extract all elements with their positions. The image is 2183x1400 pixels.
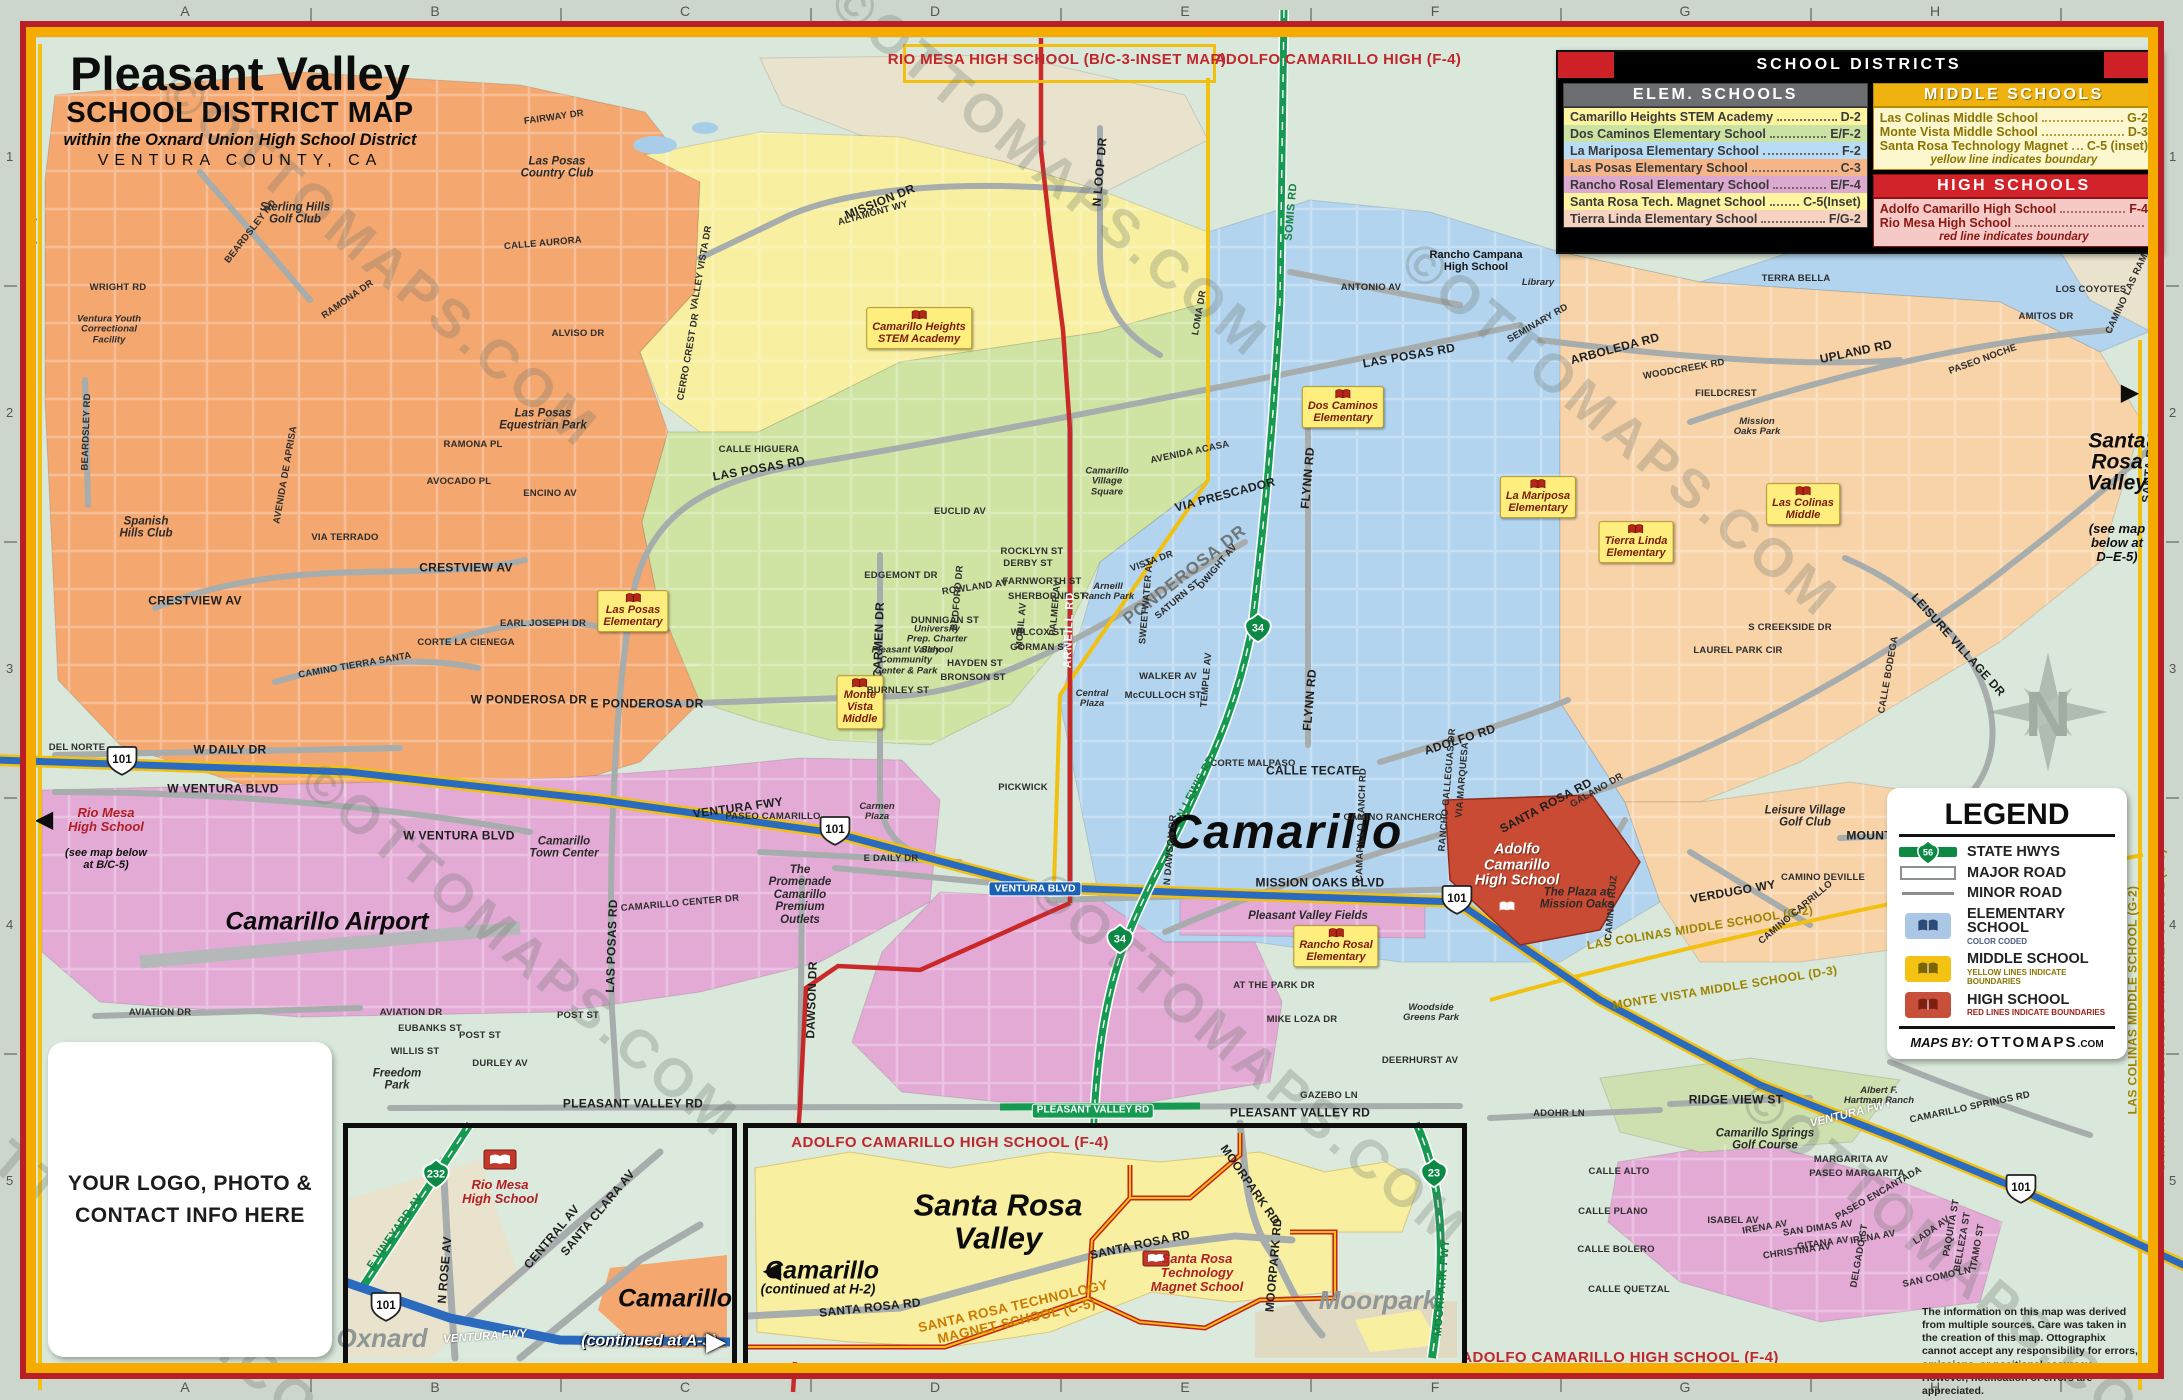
grid-letter: B (430, 3, 439, 19)
grid-tick (560, 8, 562, 21)
elem-school-row: Rancho Rosal Elementary School E/F-4 (1564, 176, 1867, 193)
grid-tick (310, 1379, 312, 1392)
elem-school-row: La Mariposa Elementary School F-2 (1564, 142, 1867, 159)
school-type-sub: COLOR CODED (1967, 938, 2115, 947)
map-poster: N (0, 0, 2183, 1400)
school-type-chip (1905, 992, 1951, 1018)
credit-domain: .COM (2078, 1039, 2104, 1050)
school-districts-title: SCHOOL DISTRICTS (1756, 56, 1961, 74)
grid-tick (2166, 285, 2179, 287)
school-name: Las Colinas Middle School (1880, 111, 2038, 125)
school-districts-panel: SCHOOL DISTRICTS ELEM. SCHOOLS Camarillo… (1556, 50, 2162, 254)
svg-text:N: N (2025, 678, 2071, 750)
leader-dots (2042, 120, 2123, 122)
legend-school-row: HIGH SCHOOL RED LINES INDICATE BOUNDARIE… (1899, 992, 2115, 1018)
middle-school-row: Las Colinas Middle School G-2 (1880, 111, 2148, 125)
grid-letter: D (930, 1379, 940, 1395)
leader-dots (1770, 204, 1799, 206)
grid-tick (1310, 8, 1312, 21)
grid-letter: A (180, 3, 189, 19)
legend-panel: LEGEND 56 STATE HWYS MAJOR ROAD MINOR RO… (1887, 788, 2127, 1059)
school-grid-ref: F/G-2 (1829, 212, 1861, 226)
grid-tick (1060, 1379, 1062, 1392)
school-grid-ref: C-3 (1841, 161, 1861, 175)
school-grid-ref: D-3 (2128, 125, 2148, 139)
school-grid-ref: F-4 (2129, 202, 2148, 216)
school-type-label: MIDDLE SCHOOL (1967, 952, 2115, 967)
school-type-chip (1905, 956, 1951, 982)
grid-tick (810, 1379, 812, 1392)
grid-letter: C (680, 3, 690, 19)
grid-number: 4 (2169, 917, 2176, 932)
red-endcap (1558, 52, 1614, 78)
school-grid-ref: C-5(Inset) (1803, 195, 1861, 209)
red-endcap (2104, 52, 2160, 78)
grid-tick (1810, 1379, 1812, 1392)
grid-number: 1 (6, 149, 13, 164)
grid-letter: G (1680, 3, 1691, 19)
high-school-row: Rio Mesa High School (1880, 216, 2148, 230)
grid-tick (4, 797, 17, 799)
school-name: Tierra Linda Elementary School (1570, 212, 1757, 226)
high-schools-list: Adolfo Camarillo High School F-4 Rio Mes… (1873, 198, 2155, 247)
grid-tick (1310, 1379, 1312, 1392)
school-grid-ref: F-2 (1842, 144, 1861, 158)
school-grid-ref: E/F-4 (1830, 178, 1861, 192)
elem-school-row: Dos Caminos Elementary School E/F-2 (1564, 125, 1867, 142)
school-name: Camarillo Heights STEM Academy (1570, 110, 1773, 124)
grid-letter: H (1930, 3, 1940, 19)
school-name: Rancho Rosal Elementary School (1570, 178, 1769, 192)
grid-tick (4, 541, 17, 543)
state-hwys-label: STATE HWYS (1967, 845, 2060, 860)
grid-tick (810, 8, 812, 21)
grid-letter: E (1180, 1379, 1189, 1395)
school-grid-ref: G-2 (2127, 111, 2148, 125)
grid-number: 1 (2169, 149, 2176, 164)
grid-tick (4, 1053, 17, 1055)
school-districts-titlebar: SCHOOL DISTRICTS (1558, 52, 2160, 78)
map-county: VENTURA COUNTY, CA (44, 152, 436, 170)
elem-school-row: Las Posas Elementary School C-3 (1564, 159, 1867, 176)
leader-dots (2072, 148, 2083, 150)
minor-road-symbol (1902, 892, 1954, 895)
leader-dots (2042, 134, 2124, 136)
middle-schools-list: Las Colinas Middle School G-2 Monte Vist… (1873, 107, 2155, 170)
school-type-label: HIGH SCHOOL (1967, 993, 2105, 1008)
title-block: Pleasant Valley SCHOOL DISTRICT MAP with… (44, 52, 436, 170)
high-schools-header: HIGH SCHOOLS (1873, 174, 2155, 198)
grid-number: 5 (2169, 1173, 2176, 1188)
hwy-56-shield: 56 (1916, 840, 1940, 865)
legend-title: LEGEND (1899, 798, 2115, 837)
grid-letter: D (930, 3, 940, 19)
leader-dots (1773, 187, 1826, 189)
grid-tick (2060, 8, 2062, 21)
school-grid-ref: E/F-2 (1830, 127, 1861, 141)
grid-tick (310, 8, 312, 21)
major-road-label: MAJOR ROAD (1967, 866, 2066, 881)
map-title: Pleasant Valley (44, 52, 436, 97)
legend-school-row: ELEMENTARY SCHOOL COLOR CODED (1899, 907, 2115, 947)
grid-letter: E (1180, 3, 1189, 19)
high-school-row: Adolfo Camarillo High School F-4 (1880, 202, 2148, 216)
legend-school-row: MIDDLE SCHOOL YELLOW LINES INDICATE BOUN… (1899, 952, 2115, 986)
grid-tick (2166, 1053, 2179, 1055)
middle-school-row: Santa Rosa Technology Magnet C-5 (inset) (1880, 139, 2148, 153)
leader-dots (1763, 153, 1838, 155)
high-boundary-note: red line indicates boundary (1880, 230, 2148, 243)
middle-school-row: Monte Vista Middle School D-3 (1880, 125, 2148, 139)
elem-schools-list: Camarillo Heights STEM Academy D-2 Dos C… (1563, 107, 1868, 228)
credit-prefix: MAPS BY: (1910, 1035, 1973, 1050)
school-name: Las Posas Elementary School (1570, 161, 1748, 175)
school-name: Adolfo Camarillo High School (1880, 202, 2056, 216)
grid-letter: B (430, 1379, 439, 1395)
school-type-label: ELEMENTARY SCHOOL (1967, 907, 2115, 936)
grid-tick (4, 285, 17, 287)
book-icon (1917, 919, 1939, 934)
logo-placeholder-box: YOUR LOGO, PHOTO & CONTACT INFO HERE (48, 1042, 332, 1357)
logo-placeholder-text: YOUR LOGO, PHOTO & CONTACT INFO HERE (68, 1168, 312, 1231)
school-type-sub: RED LINES INDICATE BOUNDARIES (1967, 1009, 2105, 1018)
elem-school-row: Santa Rosa Tech. Magnet School C-5(Inset… (1564, 193, 1867, 210)
disclaimer-text: The information on this map was derived … (1922, 1306, 2140, 1398)
legend-state-hwy-row: 56 STATE HWYS (1899, 845, 2115, 860)
grid-number: 2 (2169, 405, 2176, 420)
grid-tick (1060, 8, 1062, 21)
grid-letter: C (680, 1379, 690, 1395)
elem-school-row: Tierra Linda Elementary School F/G-2 (1564, 210, 1867, 227)
state-hwy-symbol: 56 (1899, 847, 1957, 857)
leader-dots (1770, 136, 1826, 138)
grid-number: 3 (6, 661, 13, 676)
grid-tick (1810, 8, 1812, 21)
leader-dots (1752, 170, 1837, 172)
school-name: Santa Rosa Technology Magnet (1880, 139, 2068, 153)
credit-name: OTTOMAPS (1977, 1034, 2078, 1051)
school-name: Monte Vista Middle School (1880, 125, 2038, 139)
rio-mesa-caption-box (903, 44, 1216, 83)
leader-dots (1761, 221, 1824, 223)
middle-schools-header: MIDDLE SCHOOLS (1873, 83, 2155, 107)
elem-school-row: Camarillo Heights STEM Academy D-2 (1564, 108, 1867, 125)
leader-dots (2060, 211, 2125, 213)
school-type-sub: YELLOW LINES INDICATE BOUNDARIES (1967, 969, 2115, 987)
book-icon (1917, 998, 1939, 1013)
grid-tick (560, 1379, 562, 1392)
grid-tick (2166, 541, 2179, 543)
grid-number: 3 (2169, 661, 2176, 676)
school-name: Dos Caminos Elementary School (1570, 127, 1766, 141)
legend-major-road-row: MAJOR ROAD (1899, 866, 2115, 881)
map-subtitle: SCHOOL DISTRICT MAP (44, 97, 436, 130)
school-type-chip (1905, 913, 1951, 939)
leader-dots (2015, 225, 2144, 227)
map-district-note: within the Oxnard Union High School Dist… (44, 131, 436, 150)
grid-tick (2166, 797, 2179, 799)
school-name: Santa Rosa Tech. Magnet School (1570, 195, 1766, 209)
grid-letter: A (180, 1379, 189, 1395)
minor-road-label: MINOR ROAD (1967, 886, 2062, 901)
svg-text:56: 56 (1923, 847, 1933, 857)
grid-tick (1560, 1379, 1562, 1392)
school-name: Rio Mesa High School (1880, 216, 2011, 230)
leader-dots (1777, 119, 1837, 121)
school-name: La Mariposa Elementary School (1570, 144, 1759, 158)
grid-number: 2 (6, 405, 13, 420)
grid-number: 5 (6, 1173, 13, 1188)
school-grid-ref: D-2 (1841, 110, 1861, 124)
book-icon (1917, 962, 1939, 977)
grid-number: 4 (6, 917, 13, 932)
grid-letter: F (1431, 3, 1440, 19)
legend-minor-road-row: MINOR ROAD (1899, 886, 2115, 901)
middle-boundary-note: yellow line indicates boundary (1880, 153, 2148, 166)
major-road-symbol (1900, 866, 1956, 880)
elem-schools-header: ELEM. SCHOOLS (1563, 83, 1868, 107)
legend-credit: MAPS BY: OTTOMAPS.COM (1899, 1026, 2115, 1051)
grid-letter: F (1431, 1379, 1440, 1395)
school-grid-ref: C-5 (inset) (2087, 139, 2148, 153)
grid-letter: G (1680, 1379, 1691, 1395)
grid-tick (1560, 8, 1562, 21)
